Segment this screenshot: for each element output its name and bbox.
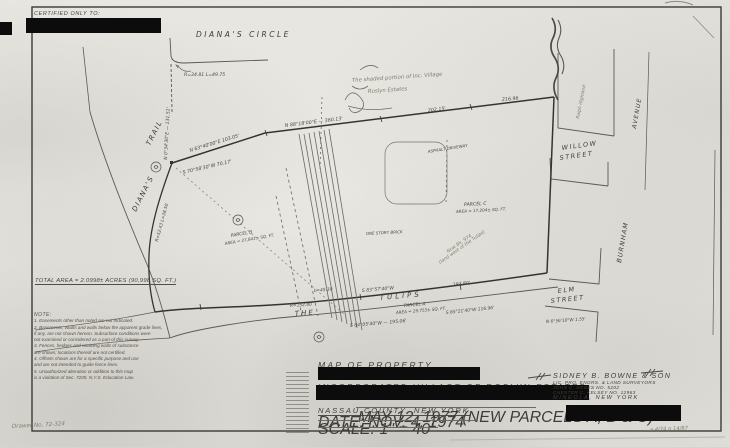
street-label-the: THE	[295, 309, 315, 318]
title-scale-line: SCALE: 1" = 40'	[318, 421, 433, 439]
surveyor-firm: SIDNEY B. BOWNE & SON	[553, 371, 671, 380]
notes-block: NOTE: 1. Easements other than noted are …	[34, 312, 244, 381]
street-label-dianas-circle: DIANA'S CIRCLE	[196, 30, 291, 39]
redaction-bar-certified	[26, 18, 161, 33]
total-area-label: TOTAL AREA = 2.0998± ACRES (90,998 SQ. F…	[35, 278, 176, 285]
certified-only-to-label: CERTIFIED ONLY TO:	[34, 11, 100, 17]
redaction-bar-signature	[566, 405, 681, 421]
note-line: is a violation of Sec. 7209, N.Y.S. Educ…	[34, 375, 244, 381]
surveyor-city: MINEOLA, NEW YORK	[553, 395, 671, 401]
scale-rule	[318, 427, 438, 428]
scanned-survey-map: { "certified": { "label": "CERTIFIED ONL…	[0, 0, 730, 447]
bearing-circle-curve: R=34.81 L=49.75	[184, 72, 225, 78]
surveyor-block: SIDNEY B. BOWNE & SON LIC. PRO. ENGRS. &…	[553, 371, 671, 401]
redaction-bar-description	[316, 385, 589, 400]
title-rule	[356, 407, 536, 408]
redaction-chip-left-edge	[0, 22, 12, 35]
fine-print-block	[286, 372, 309, 434]
